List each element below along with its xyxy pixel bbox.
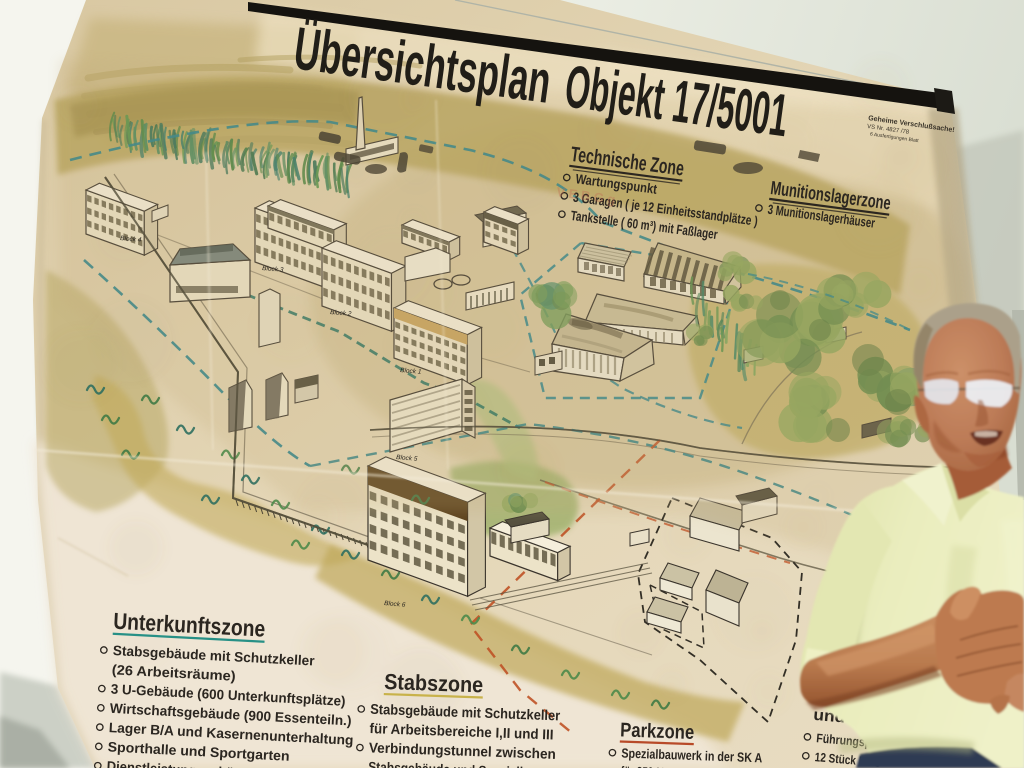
svg-text:Parkzone: Parkzone	[620, 719, 695, 744]
svg-text:Stabszone: Stabszone	[384, 669, 484, 697]
